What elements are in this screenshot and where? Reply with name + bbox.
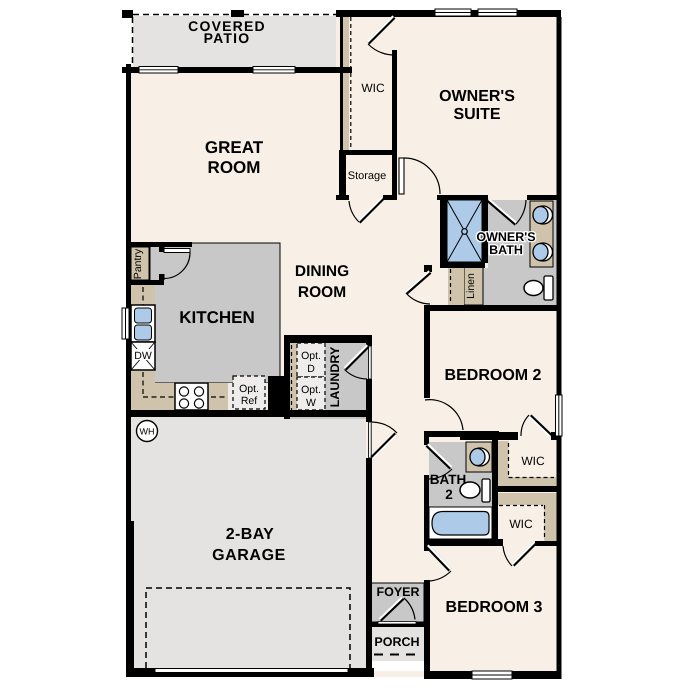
svg-text:GREAT: GREAT	[205, 138, 264, 157]
svg-text:BEDROOM 2: BEDROOM 2	[445, 367, 542, 384]
svg-text:WIC: WIC	[509, 517, 533, 531]
svg-text:Storage: Storage	[348, 170, 387, 182]
svg-text:WIC: WIC	[361, 81, 385, 95]
svg-text:OWNER'S: OWNER'S	[476, 230, 535, 244]
svg-text:GARAGE: GARAGE	[212, 547, 286, 564]
svg-text:SUITE: SUITE	[453, 106, 500, 123]
svg-text:2: 2	[445, 487, 453, 502]
svg-text:Pantry: Pantry	[132, 248, 144, 279]
svg-text:Opt.: Opt.	[301, 384, 321, 396]
svg-text:Linen: Linen	[465, 273, 477, 299]
svg-text:D: D	[307, 363, 315, 375]
svg-text:WIC: WIC	[521, 454, 545, 468]
svg-text:BATH: BATH	[430, 472, 467, 487]
svg-text:DW: DW	[134, 350, 152, 362]
svg-text:Opt.: Opt.	[301, 350, 321, 362]
svg-text:W: W	[306, 397, 316, 409]
svg-text:LAUNDRY: LAUNDRY	[328, 346, 342, 407]
svg-text:DINING: DINING	[295, 263, 349, 280]
svg-text:Ref: Ref	[241, 395, 257, 407]
svg-text:BATH: BATH	[489, 243, 523, 257]
svg-text:2-BAY: 2-BAY	[226, 526, 275, 543]
svg-text:ROOM: ROOM	[208, 158, 261, 177]
svg-text:WH: WH	[140, 427, 155, 437]
svg-text:FOYER: FOYER	[376, 585, 419, 599]
svg-text:OWNER'S: OWNER'S	[439, 88, 515, 105]
svg-text:ROOM: ROOM	[298, 284, 346, 301]
svg-text:Opt.: Opt.	[239, 383, 259, 395]
svg-text:BEDROOM 3: BEDROOM 3	[446, 599, 543, 616]
svg-text:PATIO: PATIO	[204, 30, 251, 46]
svg-text:PORCH: PORCH	[374, 635, 419, 649]
svg-text:KITCHEN: KITCHEN	[179, 308, 255, 327]
